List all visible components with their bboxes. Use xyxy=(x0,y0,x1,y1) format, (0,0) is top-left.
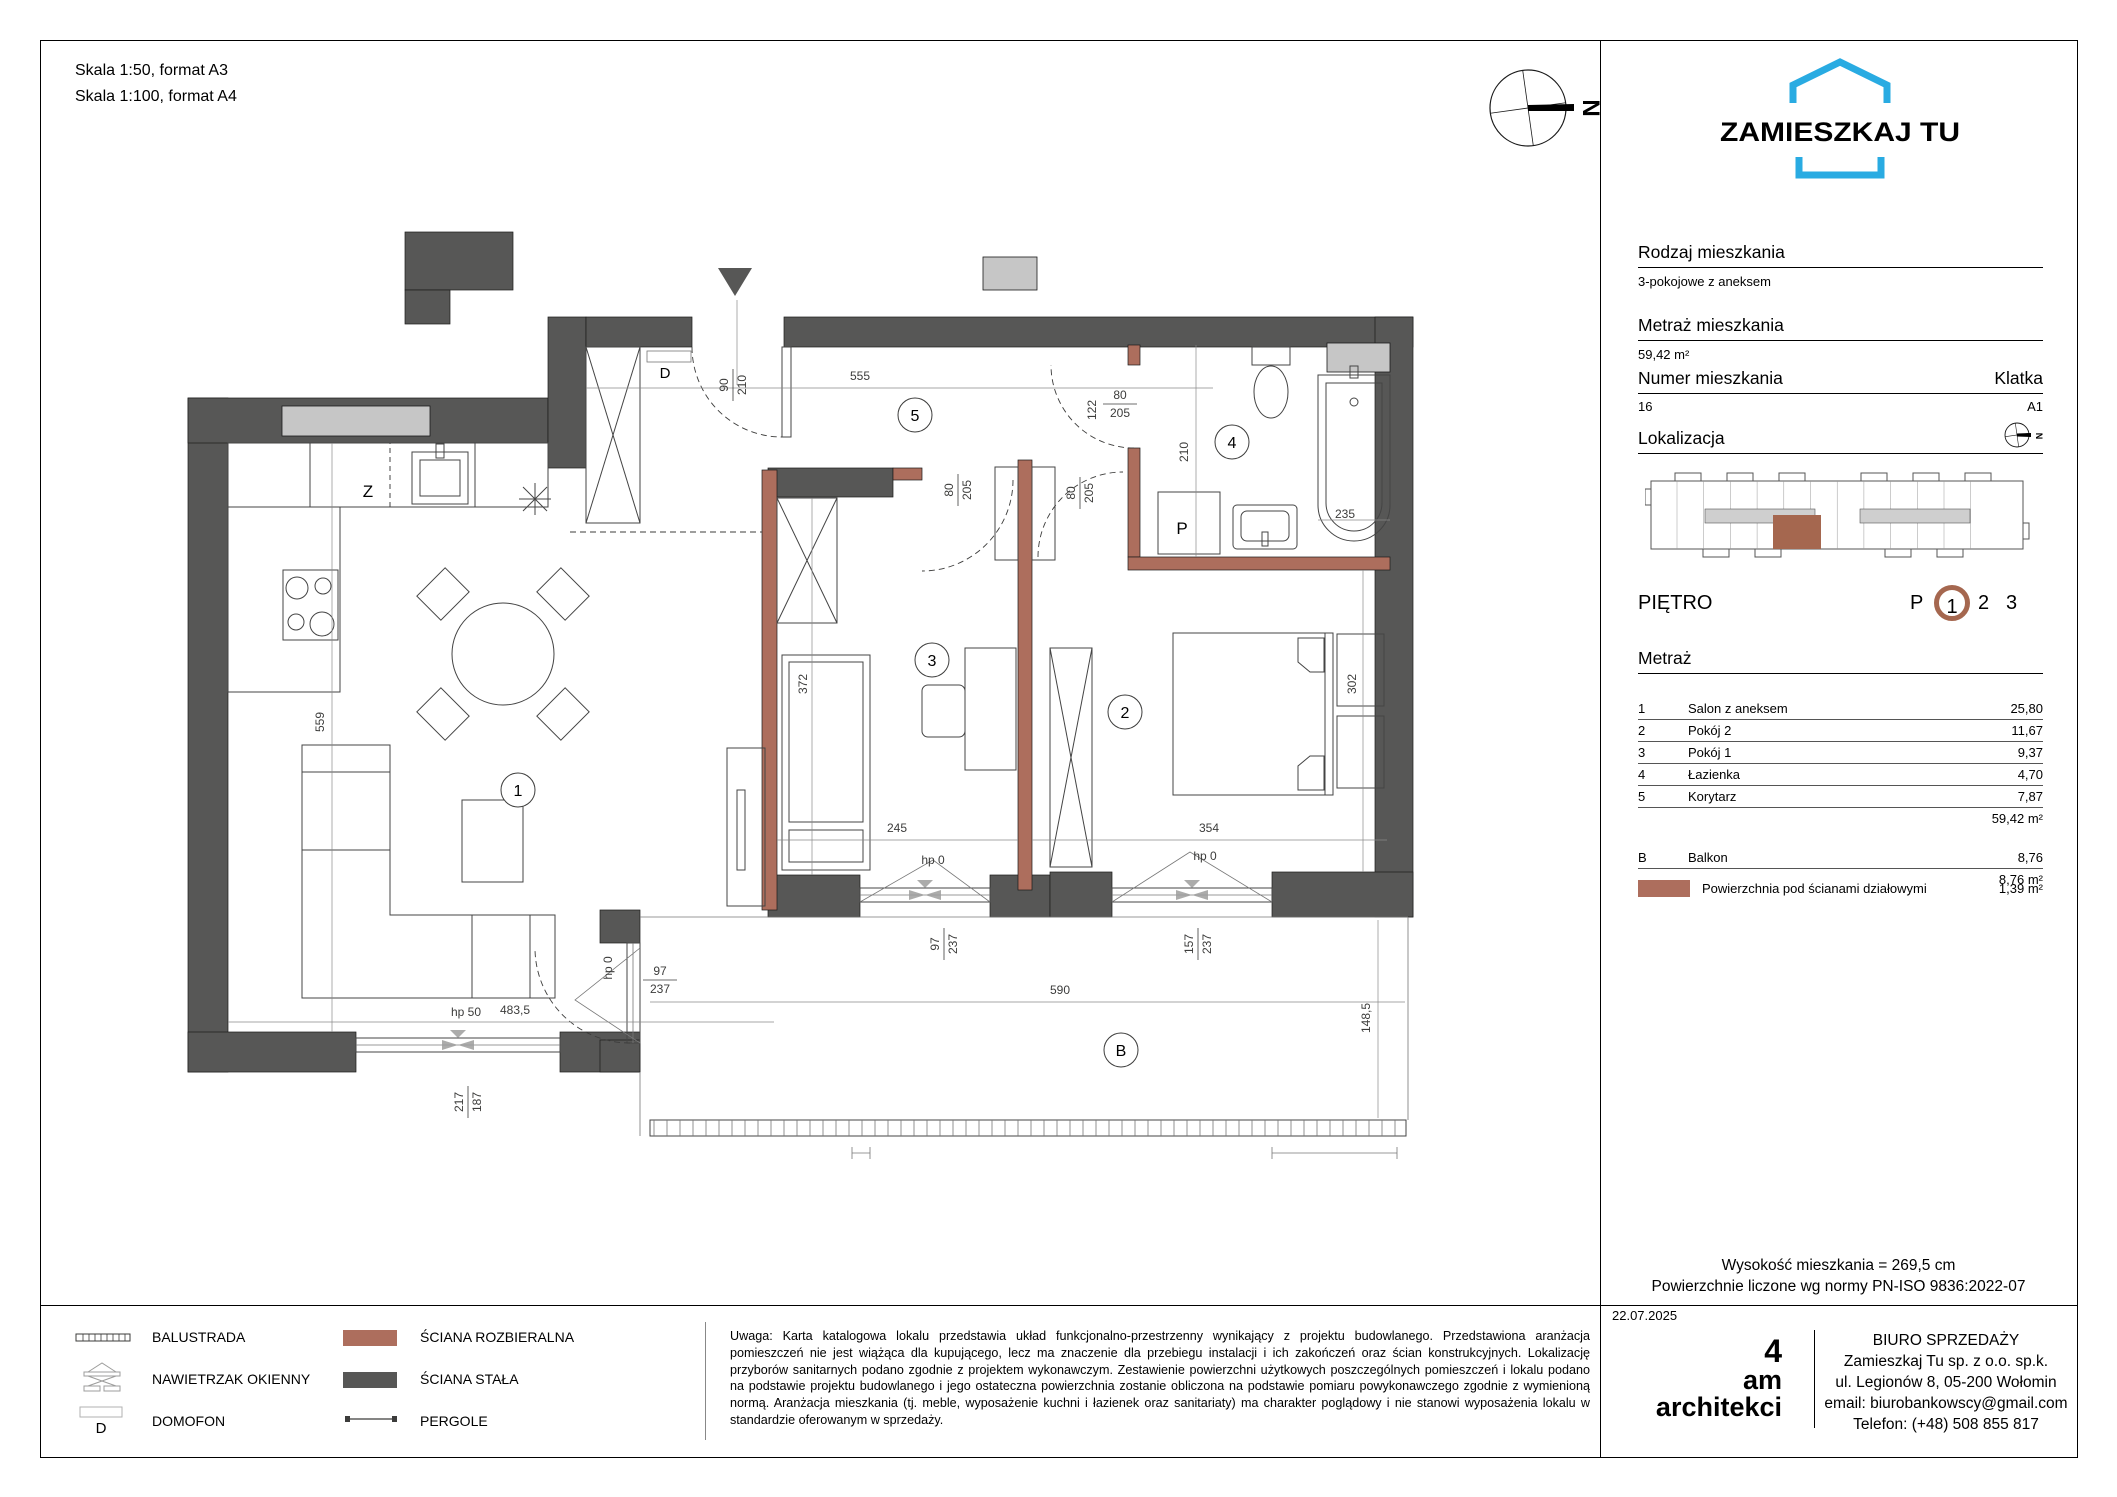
studio-architekci: architekci xyxy=(1640,1394,1782,1421)
domofon-letter: D xyxy=(660,365,671,382)
office-address: ul. Legionów 8, 05-200 Wołomin xyxy=(1818,1372,2074,1393)
svg-text:217: 217 xyxy=(452,1092,466,1112)
brand-name: ZAMIESZKAJ TU xyxy=(1720,117,1960,147)
dim-room1-window: 97237 xyxy=(928,928,960,960)
dim-235: 235 xyxy=(1335,507,1355,521)
entrance: D xyxy=(647,268,791,437)
norm-note: Powierzchnie liczone wg normy PN-ISO 983… xyxy=(1600,1276,2077,1297)
hob-icon xyxy=(519,483,551,515)
dim-entrance: 90210 xyxy=(717,369,749,401)
washer-letter: P xyxy=(1176,519,1187,538)
dim-555: 555 xyxy=(850,369,870,383)
dim-room2-door: 80205 xyxy=(1064,477,1096,509)
svg-text:D: D xyxy=(96,1420,107,1437)
room-circle-2: 2 xyxy=(1108,695,1142,729)
pietro-label: PIĘTRO xyxy=(1638,592,1712,615)
dim-4835: 483,5 xyxy=(500,1003,530,1017)
room-circle-1: 1 xyxy=(501,773,535,807)
apartment-card-page: { "colors":{"accent_blue":"#29abe2","wal… xyxy=(0,0,2117,1497)
klatka-label: Klatka xyxy=(1638,368,2043,389)
partition-note: Powierzchnia pod ścianami działowymi 1,3… xyxy=(1638,880,2043,897)
room2-door-arc xyxy=(1038,472,1123,557)
room-circle-b: B xyxy=(1104,1033,1138,1067)
svg-text:210: 210 xyxy=(735,375,749,395)
bathroom-fixtures xyxy=(1158,347,1390,554)
floor-option-1-active: 1 xyxy=(1934,585,1970,621)
legend-nawietrzak: NAWIETRZAK OKIENNY xyxy=(152,1371,310,1387)
bottom-notes: Wysokość mieszkania = 269,5 cm Powierzch… xyxy=(1600,1255,2077,1297)
room1-furniture xyxy=(782,648,1016,870)
svg-text:B: B xyxy=(1116,1043,1127,1060)
hp50-living: hp 50 xyxy=(451,1005,481,1019)
svg-text:205: 205 xyxy=(960,480,974,500)
nawiet rzak-icon xyxy=(78,1360,126,1398)
office-title: BIURO SPRZEDAŻY xyxy=(1818,1330,2074,1351)
svg-text:80: 80 xyxy=(1064,486,1078,500)
table-row: 4Łazienka4,70 xyxy=(1638,764,2043,786)
brand-logo: ZAMIESZKAJ TU xyxy=(1695,55,1985,205)
studio-4: 4 xyxy=(1640,1335,1782,1367)
washbasin xyxy=(1233,505,1297,549)
pergola-left xyxy=(852,1147,870,1159)
wardrobes xyxy=(586,347,1092,867)
floor-option-p: P xyxy=(1910,592,1923,615)
svg-text:97: 97 xyxy=(928,937,942,951)
rodzaj-value: 3-pokojowe z aneksem xyxy=(1638,274,1771,289)
hp0-room1: hp 0 xyxy=(921,853,945,867)
legend-pergole: PERGOLE xyxy=(420,1413,488,1429)
metraz-table-label: Metraż xyxy=(1638,648,1691,669)
kitchen xyxy=(228,443,551,692)
legend-sciana-rozbieralna: ŚCIANA ROZBIERALNA xyxy=(420,1329,574,1345)
balcony-door xyxy=(535,943,640,1043)
sidebar: ZAMIESZKAJ TU Rodzaj mieszkania 3-pokojo… xyxy=(1600,40,2077,1457)
areas-table: 1Salon z aneksem25,80 2Pokój 211,67 3Pok… xyxy=(1638,698,2043,890)
dim-1485: 148,5 xyxy=(1359,1003,1373,1033)
floor-plan: D Z xyxy=(40,40,1600,1305)
svg-text:205: 205 xyxy=(1110,406,1130,420)
domofon-legend-icon: D xyxy=(78,1405,126,1439)
svg-text:205: 205 xyxy=(1082,483,1096,503)
sales-office: BIURO SPRZEDAŻY Zamieszkaj Tu sp. z o.o.… xyxy=(1818,1330,2074,1435)
height-note: Wysokość mieszkania = 269,5 cm xyxy=(1600,1255,2077,1276)
svg-text:237: 237 xyxy=(946,934,960,954)
rodzaj-label: Rodzaj mieszkania xyxy=(1638,242,1785,263)
svg-text:80: 80 xyxy=(1113,388,1127,402)
pergola-right xyxy=(1272,1147,1397,1159)
svg-text:1: 1 xyxy=(514,783,523,800)
floor-option-2: 2 xyxy=(1978,592,1989,615)
svg-text:2: 2 xyxy=(1121,705,1130,722)
washing-machine xyxy=(1158,492,1220,554)
metraz-value: 59,42 m² xyxy=(1638,347,1689,362)
disclaimer-text: Uwaga: Karta katalogowa lokalu przedstaw… xyxy=(730,1328,1590,1429)
dining-set xyxy=(417,568,589,740)
room-circle-3: 3 xyxy=(915,643,949,677)
table-row: 2Pokój 211,67 xyxy=(1638,720,2043,742)
dim-372: 372 xyxy=(796,674,810,694)
hp0-room2: hp 0 xyxy=(1193,849,1217,863)
dim-590: 590 xyxy=(1050,983,1070,997)
table-row: 5Korytarz7,87 xyxy=(1638,786,2043,808)
room-circle-5: 5 xyxy=(898,398,932,432)
svg-text:237: 237 xyxy=(650,982,670,996)
walls-structural xyxy=(188,232,1413,1072)
dim-room1-door: 80205 xyxy=(942,474,974,506)
svg-text:157: 157 xyxy=(1182,934,1196,954)
pergole-icon xyxy=(343,1413,401,1427)
svg-text:90: 90 xyxy=(717,378,731,392)
dim-122: 122 xyxy=(1085,400,1099,420)
balustrade-icon xyxy=(75,1331,133,1345)
sciana-rozbieralna-swatch xyxy=(343,1330,397,1346)
svg-text:3: 3 xyxy=(928,653,937,670)
date: 22.07.2025 xyxy=(1612,1308,1677,1323)
toilet xyxy=(1252,347,1290,365)
dim-354: 354 xyxy=(1199,821,1219,835)
dim-balcony-door: 97237 xyxy=(643,964,677,996)
sink-letter: Z xyxy=(363,482,373,501)
legend-sciana-stala: ŚCIANA STAŁA xyxy=(420,1371,519,1387)
dim-302: 302 xyxy=(1345,674,1359,694)
rooms-total: 59,42 m² xyxy=(1638,808,2043,829)
room-circle-4: 4 xyxy=(1215,425,1249,459)
mini-north-letter: N xyxy=(2034,433,2044,440)
domofon-icon xyxy=(647,351,691,362)
svg-text:80: 80 xyxy=(942,483,956,497)
entrance-door-leaf xyxy=(782,347,791,437)
dim-559: 559 xyxy=(313,712,327,732)
floor-option-3: 3 xyxy=(2006,592,2017,615)
office-phone: Telefon: (+48) 508 855 817 xyxy=(1818,1414,2074,1435)
svg-text:4: 4 xyxy=(1228,435,1237,452)
table-row-balcony: BBalkon8,76 xyxy=(1638,847,2043,869)
sciana-stala-swatch xyxy=(343,1372,397,1388)
entrance-arrow xyxy=(718,268,752,296)
svg-text:97: 97 xyxy=(653,964,667,978)
studio-am: am xyxy=(1640,1367,1782,1394)
partition-value: 1,39 m² xyxy=(1999,881,2043,896)
coffee-table xyxy=(462,800,523,882)
cooktop xyxy=(283,570,338,640)
studio-logo: 4 am architekci xyxy=(1640,1335,1782,1421)
dim-living-window: 217187 xyxy=(452,1086,484,1118)
minimap-unit-highlight xyxy=(1773,515,1821,549)
room2-window xyxy=(1112,852,1272,902)
svg-text:237: 237 xyxy=(1200,934,1214,954)
balustrade-ticks xyxy=(654,1120,1395,1136)
partition-swatch xyxy=(1638,880,1690,897)
legend-disclaimer-divider xyxy=(705,1322,706,1440)
office-email: email: biurobankowscy@gmail.com xyxy=(1818,1393,2074,1414)
dim-room2-window: 157237 xyxy=(1182,928,1214,960)
minimap-core-right xyxy=(1860,509,1970,523)
dim-bath-door: 80205 xyxy=(1103,388,1137,420)
walls-partition xyxy=(762,345,1390,910)
table-row: 3Pokój 19,37 xyxy=(1638,742,2043,764)
balcony xyxy=(640,917,1408,1159)
metraz-label: Metraż mieszkania xyxy=(1638,315,1784,336)
balustrade xyxy=(650,1120,1406,1136)
svg-text:5: 5 xyxy=(911,408,920,425)
building-minimap xyxy=(1645,465,2030,570)
svg-text:187: 187 xyxy=(470,1092,484,1112)
partition-label: Powierzchnia pod ścianami działowymi xyxy=(1702,881,1987,896)
office-company: Zamieszkaj Tu sp. z o.o. sp.k. xyxy=(1818,1351,2074,1372)
tv-unit xyxy=(727,748,765,906)
legend-domofon: DOMOFON xyxy=(152,1413,225,1429)
legend: BALUSTRADA NAWIETRZAK OKIENNY D DOMOFON … xyxy=(40,1305,705,1457)
room2-furniture xyxy=(1173,633,1384,795)
studio-office-divider xyxy=(1814,1330,1815,1428)
mini-compass: N xyxy=(1995,415,2050,455)
legend-balustrada: BALUSTRADA xyxy=(152,1329,245,1345)
hp0-balcony-door: hp 0 xyxy=(601,956,615,980)
dim-bath-210: 210 xyxy=(1177,442,1191,462)
klatka-value: A1 xyxy=(1638,399,2043,414)
lokalizacja-label: Lokalizacja xyxy=(1638,428,1725,449)
dim-245: 245 xyxy=(887,821,907,835)
table-row: 1Salon z aneksem25,80 xyxy=(1638,698,2043,720)
